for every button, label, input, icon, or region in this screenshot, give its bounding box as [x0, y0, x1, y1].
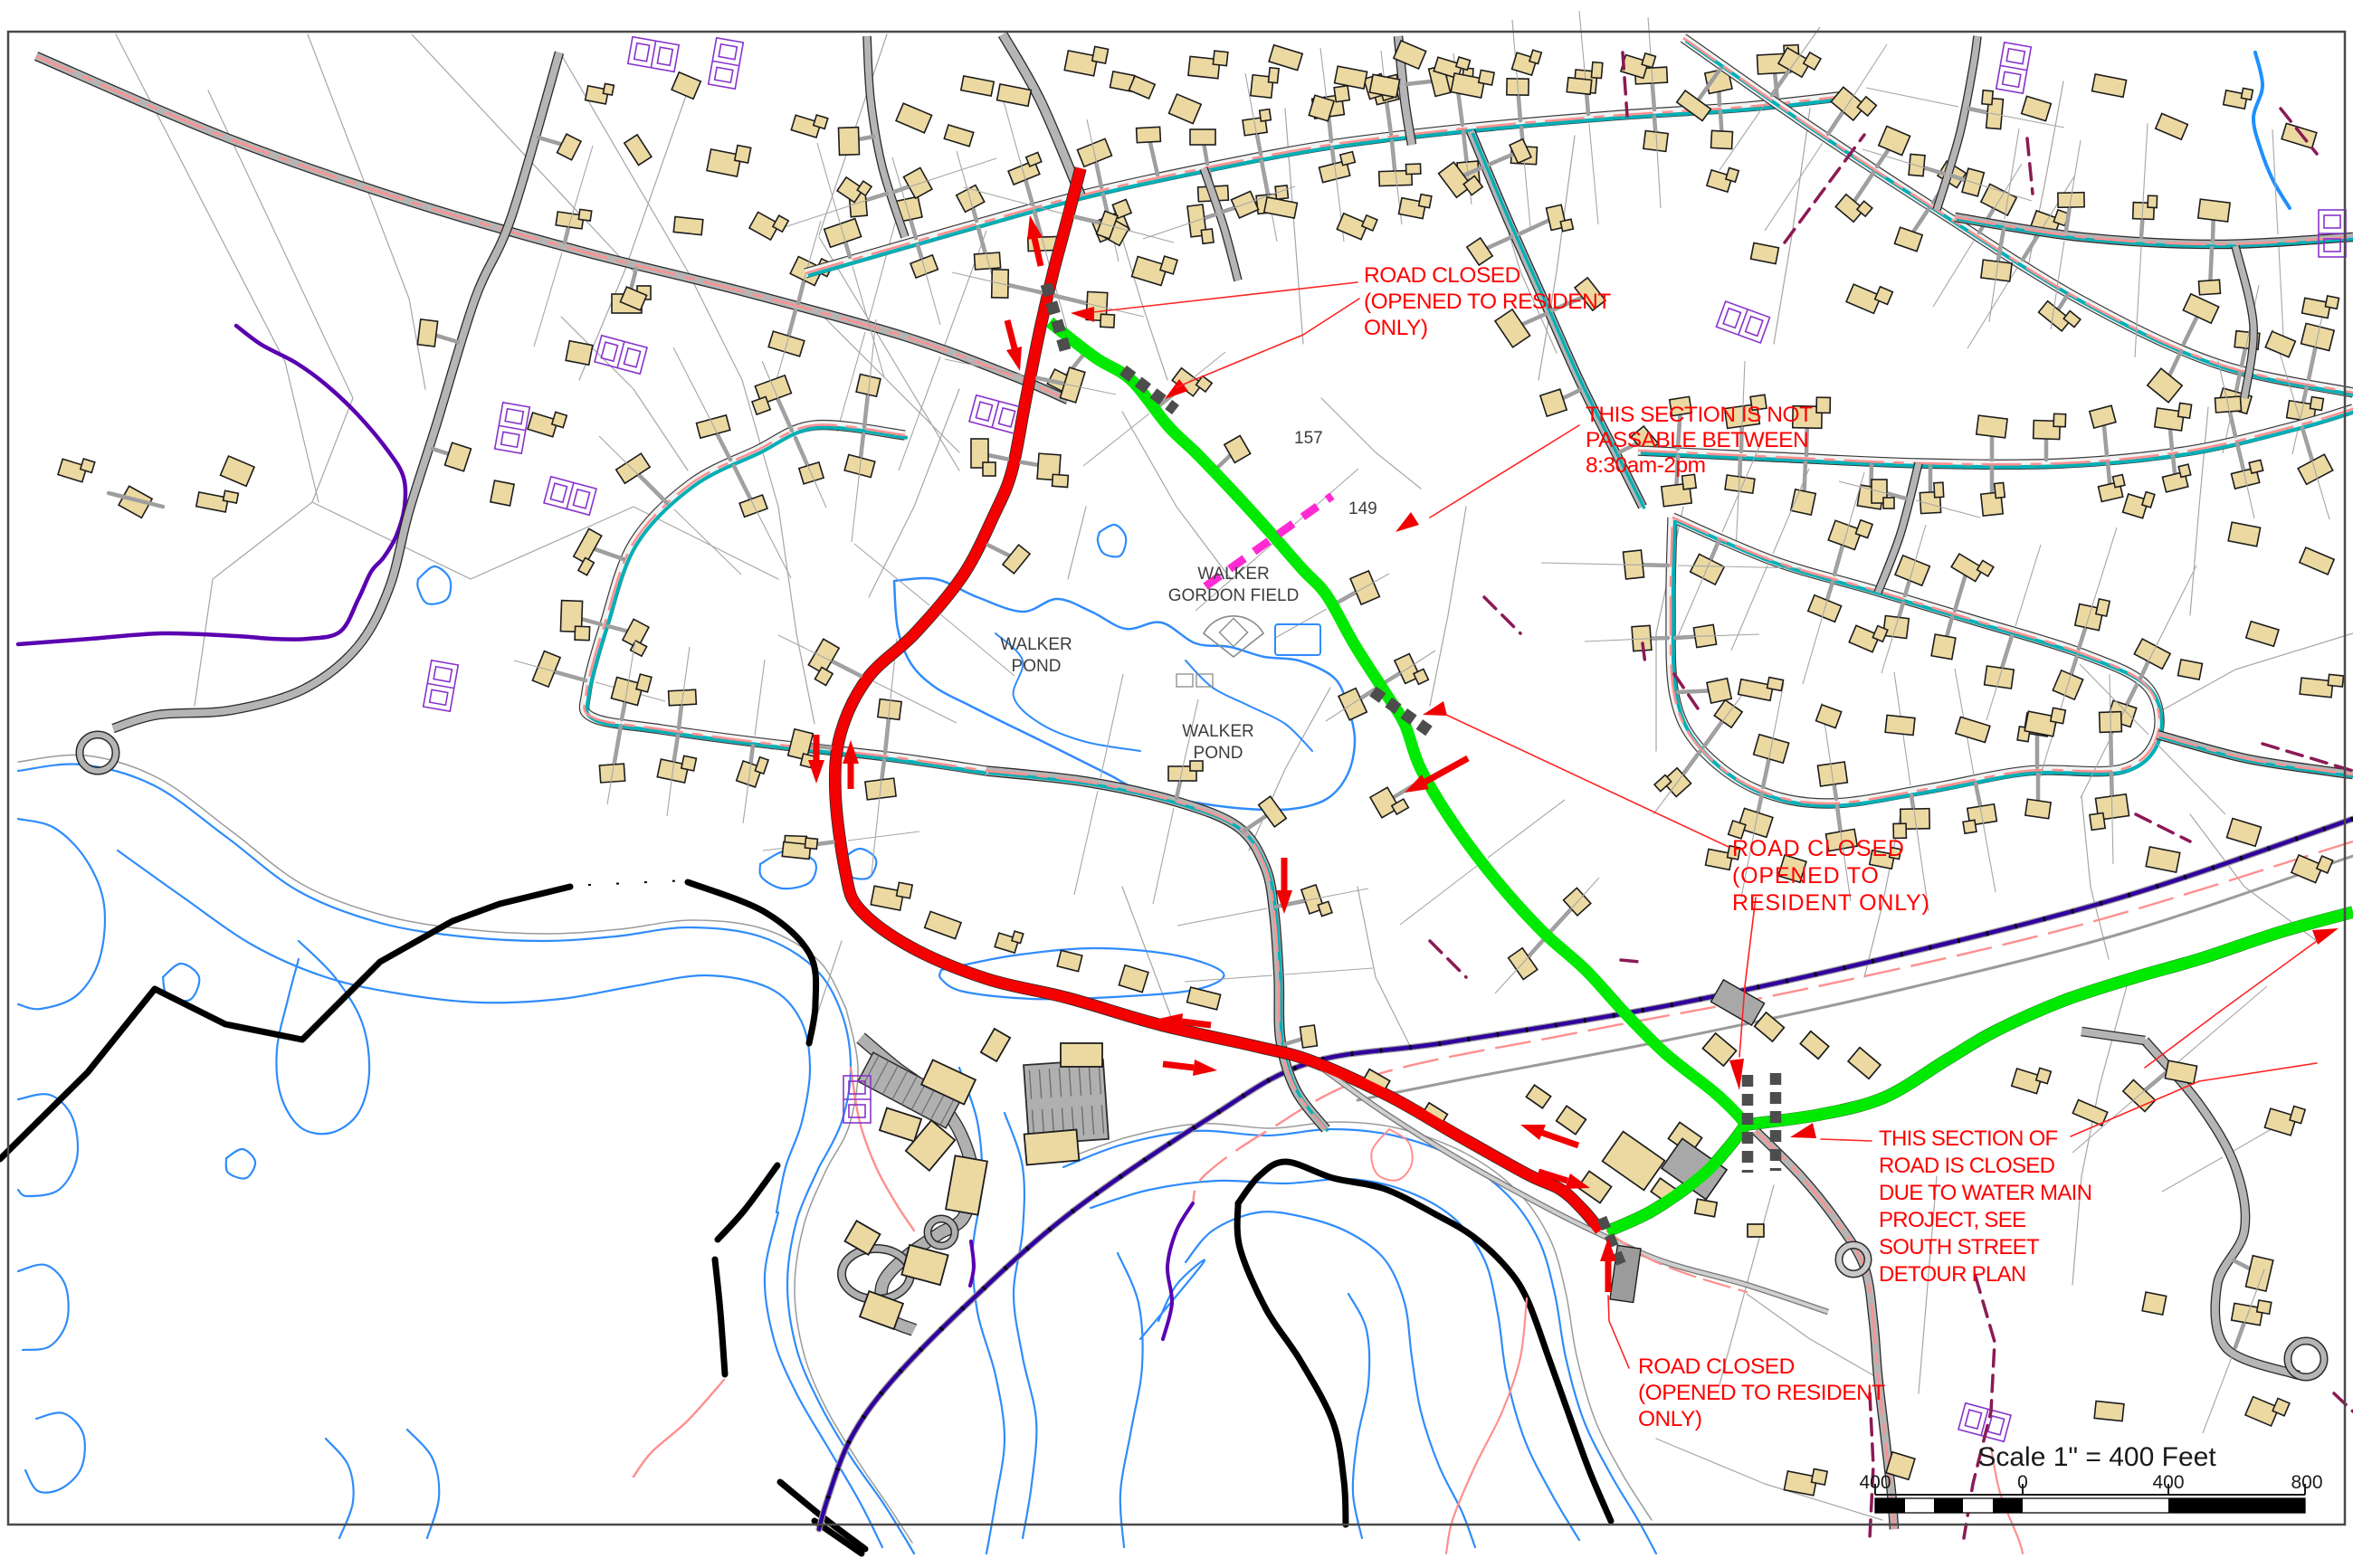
svg-text:GORDON FIELD: GORDON FIELD	[1168, 586, 1300, 605]
svg-text:800: 800	[2291, 1472, 2322, 1493]
svg-text:(OPENED TO RESIDENT: (OPENED TO RESIDENT	[1364, 290, 1611, 314]
svg-text:WALKER: WALKER	[1000, 635, 1072, 654]
svg-text:WALKER: WALKER	[1197, 565, 1270, 584]
svg-text:DETOUR PLAN: DETOUR PLAN	[1879, 1262, 2026, 1287]
svg-text:ROAD CLOSED: ROAD CLOSED	[1364, 263, 1520, 288]
svg-text:ONLY): ONLY)	[1364, 316, 1428, 340]
svg-text:THIS SECTION OF: THIS SECTION OF	[1879, 1126, 2058, 1151]
svg-text:DUE TO WATER MAIN: DUE TO WATER MAIN	[1879, 1181, 2091, 1205]
svg-text:Scale 1" = 400 Feet: Scale 1" = 400 Feet	[1977, 1442, 2216, 1472]
svg-text:157: 157	[1294, 429, 1323, 448]
svg-text:(OPENED TO: (OPENED TO	[1732, 863, 1880, 889]
svg-text:8:30am-2pm: 8:30am-2pm	[1586, 453, 1706, 478]
svg-text:POND: POND	[1194, 744, 1243, 763]
svg-text:SOUTH STREET: SOUTH STREET	[1879, 1235, 2040, 1259]
svg-text:THIS SECTION IS NOT: THIS SECTION IS NOT	[1586, 403, 1813, 427]
svg-text:POND: POND	[1012, 657, 1062, 676]
svg-text:ROAD CLOSED: ROAD CLOSED	[1732, 836, 1905, 861]
svg-text:(OPENED TO RESIDENT: (OPENED TO RESIDENT	[1638, 1381, 1885, 1405]
svg-text:149: 149	[1348, 499, 1377, 518]
svg-text:RESIDENT ONLY): RESIDENT ONLY)	[1732, 890, 1930, 916]
svg-text:ONLY): ONLY)	[1638, 1407, 1702, 1431]
svg-text:PASSABLE BETWEEN: PASSABLE BETWEEN	[1586, 428, 1808, 452]
svg-text:WALKER: WALKER	[1182, 722, 1254, 741]
svg-text:ROAD IS CLOSED: ROAD IS CLOSED	[1879, 1154, 2055, 1178]
svg-text:PROJECT, SEE: PROJECT, SEE	[1879, 1208, 2025, 1232]
svg-text:ROAD CLOSED: ROAD CLOSED	[1638, 1354, 1795, 1379]
